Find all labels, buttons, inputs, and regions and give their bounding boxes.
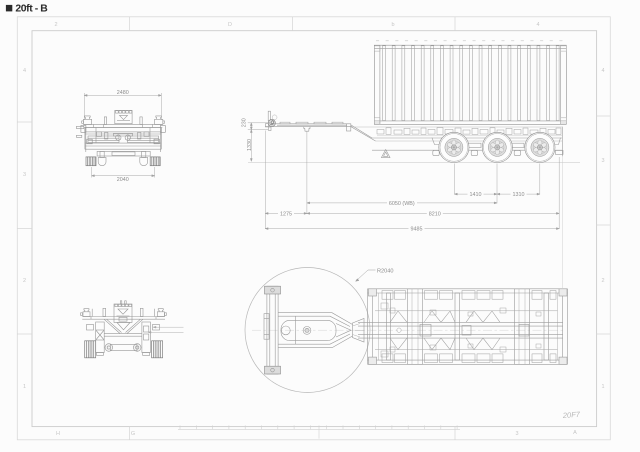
svg-text:4: 4 (23, 68, 26, 74)
svg-text:1310: 1310 (513, 192, 525, 198)
svg-text:9485: 9485 (411, 227, 423, 233)
svg-text:D: D (228, 22, 232, 28)
svg-text:1275: 1275 (280, 212, 292, 218)
svg-text:20F7: 20F7 (562, 410, 582, 420)
svg-text:b: b (391, 22, 394, 28)
svg-text:1330: 1330 (247, 139, 253, 151)
svg-text:3: 3 (601, 158, 604, 164)
svg-text:1410: 1410 (470, 192, 482, 198)
svg-text:2480: 2480 (117, 90, 129, 96)
svg-text:G: G (131, 431, 135, 437)
svg-text:R2040: R2040 (377, 268, 393, 274)
svg-text:6050 (WB): 6050 (WB) (389, 201, 415, 207)
svg-text:1: 1 (23, 384, 26, 390)
svg-text:2: 2 (23, 278, 26, 284)
svg-text:8210: 8210 (429, 212, 441, 218)
svg-text:4: 4 (536, 22, 539, 28)
svg-text:2: 2 (601, 278, 604, 284)
svg-text:A: A (573, 430, 577, 436)
svg-text:H: H (56, 431, 60, 437)
svg-text:2040: 2040 (117, 177, 129, 183)
svg-text:20ft - B: 20ft - B (15, 4, 48, 15)
svg-text:4: 4 (601, 68, 604, 74)
svg-text:2: 2 (54, 22, 57, 28)
svg-text:3: 3 (515, 431, 518, 437)
svg-text:1: 1 (601, 384, 604, 390)
svg-text:3: 3 (23, 172, 26, 178)
svg-text:230: 230 (242, 118, 248, 127)
